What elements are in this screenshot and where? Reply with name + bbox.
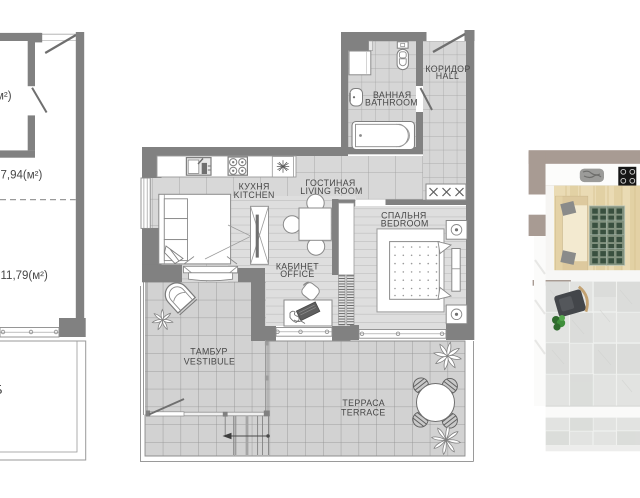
svg-text:ТАМБУР: ТАМБУР [190,346,227,356]
svg-text:м²): м²) [0,91,12,103]
svg-text:OFFICE: OFFICE [280,269,314,279]
svg-text:KITCHEN: KITCHEN [234,190,275,200]
svg-text:7,94(м²): 7,94(м²) [1,170,43,182]
svg-text:BEDROOM: BEDROOM [381,219,429,229]
svg-text:HALL: HALL [436,71,459,81]
svg-text:BATHROOM: BATHROOM [365,98,418,108]
svg-text:LIVING ROOM: LIVING ROOM [300,186,363,196]
svg-text:VESTIBULE: VESTIBULE [184,356,236,366]
svg-text:TERRACE: TERRACE [341,407,385,417]
svg-text:11,79(м²): 11,79(м²) [1,270,48,282]
svg-text:Б: Б [0,382,3,397]
